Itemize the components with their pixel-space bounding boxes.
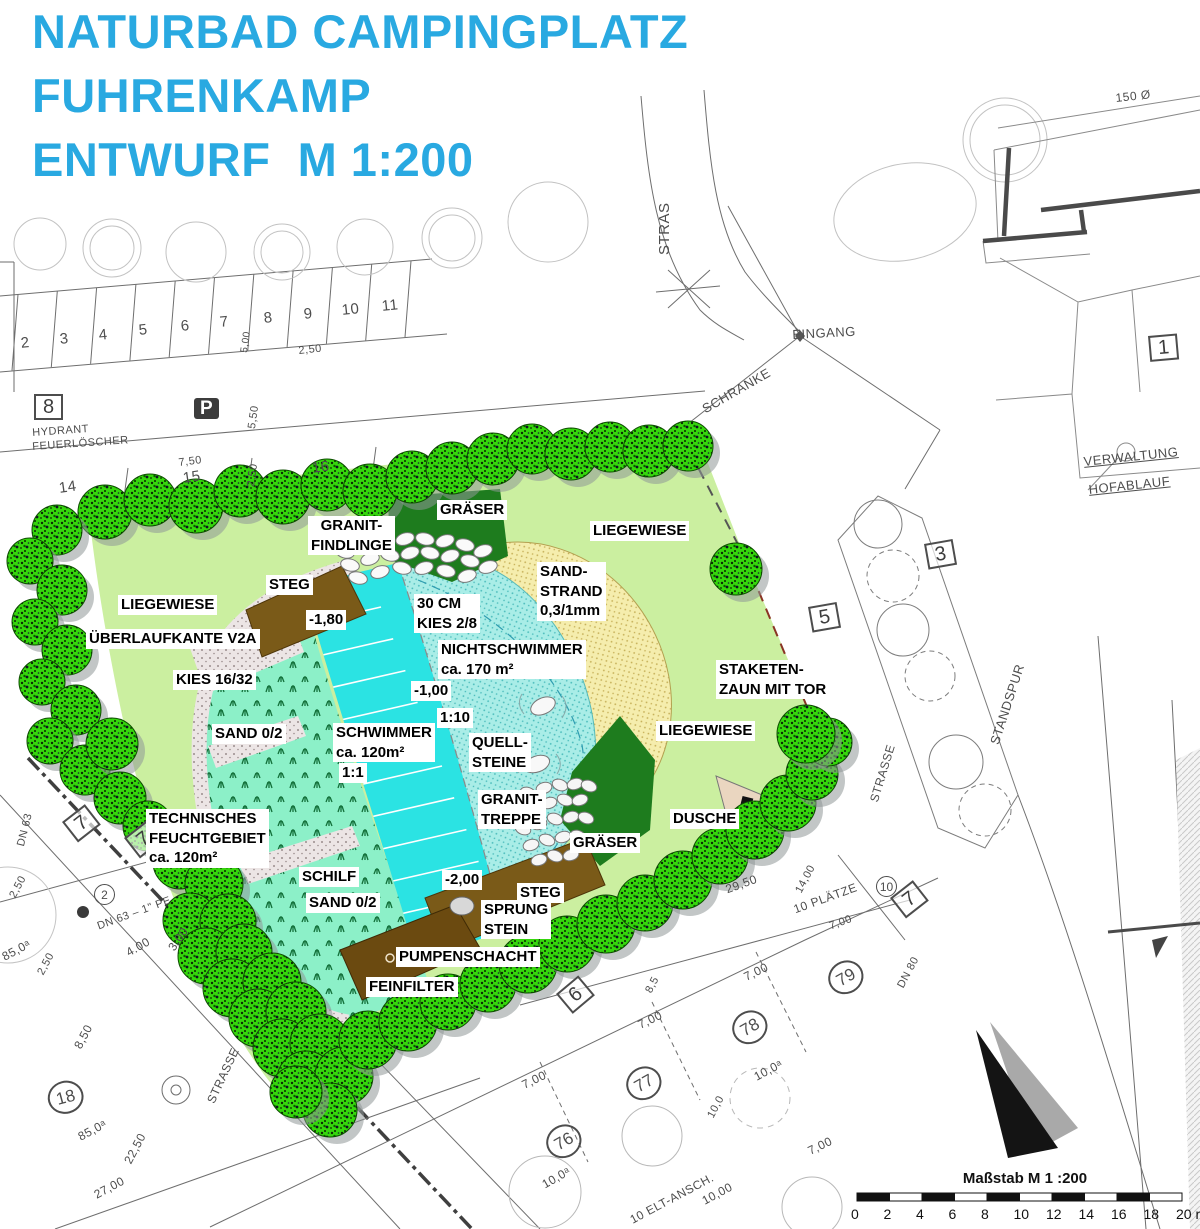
scan-label-14: 14 — [58, 479, 78, 496]
scalebar-tick-2: 2 — [884, 1206, 892, 1222]
plan-title-line-3: ENTWURF M 1:200 — [32, 136, 474, 183]
pool-design — [7, 421, 859, 1144]
plan-label-gräser: GRÄSER — [570, 833, 640, 853]
scan-label-2: 2 — [20, 335, 30, 351]
north-arrow — [976, 1022, 1078, 1158]
scan-label-6: 6 — [180, 318, 190, 334]
plan-label-granit-findlinge: GRANIT- FINDLINGE — [308, 516, 395, 555]
scan-label-3: 3 — [924, 539, 957, 570]
plan-label-steg: STEG — [266, 575, 313, 595]
scalebar-tick-6: 6 — [949, 1206, 957, 1222]
scan-label-8: 8 — [34, 394, 63, 420]
plan-label-feinfilter: FEINFILTER — [366, 977, 458, 997]
scalebar-tick-10: 10 — [1014, 1206, 1030, 1222]
scalebar-caption: Maßstab M 1 :200 — [940, 1170, 1110, 1187]
scan-label-15: 15 — [182, 469, 202, 486]
scan-label-7: 7 — [219, 314, 229, 330]
plan-label-sand-strand-0-3-1mm: SAND- STRAND 0,3/1mm — [537, 562, 606, 621]
scan-label-11: 11 — [381, 297, 399, 314]
jump-stone — [450, 897, 474, 915]
plan-label-1-1: 1:1 — [339, 763, 367, 783]
scan-label-9: 9 — [303, 306, 313, 322]
plan-label-quell-steine: QUELL- STEINE — [469, 733, 531, 772]
plan-title-line-1: NATURBAD CAMPINGPLATZ — [32, 8, 688, 55]
scan-label-5: 5 — [808, 602, 841, 633]
scan-label-5: 5 — [138, 322, 148, 338]
plan-label-30-cm-kies-2-8: 30 CM KIES 2/8 — [414, 594, 480, 633]
verwaltung-building — [983, 96, 1200, 490]
plan-label-sprung-stein: SPRUNG STEIN — [481, 900, 551, 939]
plan-title-line-2: FUHRENKAMP — [32, 72, 371, 119]
plan-label-technisches-feuchtgebiet-ca-120m: TECHNISCHES FEUCHTGEBIET ca. 120m² — [146, 809, 269, 868]
plan-label-nichtschwimmer-ca-170-m: NICHTSCHWIMMER ca. 170 m² — [438, 640, 586, 679]
scan-label-4: 4 — [98, 327, 108, 343]
scan-label-1: 1 — [1148, 333, 1179, 361]
plan-label-pumpenschacht: PUMPENSCHACHT — [396, 947, 540, 967]
plan-label-1-80: -1,80 — [306, 610, 346, 630]
plan-label-staketen-zaun-mit-tor: STAKETEN- ZAUN MIT TOR — [716, 660, 829, 699]
scalebar-tick-12: 12 — [1046, 1206, 1062, 1222]
scalebar-tick-14: 14 — [1079, 1206, 1095, 1222]
scan-label-150: 150 Ø — [1115, 88, 1151, 104]
scalebar-tick-0: 0 — [851, 1206, 859, 1222]
scan-label-p: P — [194, 398, 219, 419]
plan-label-granit-treppe: GRANIT- TREPPE — [478, 790, 546, 829]
scalebar-tick-8: 8 — [981, 1206, 989, 1222]
plan-label-überlaufkante-v2a: ÜBERLAUFKANTE V2A — [86, 629, 260, 649]
scan-label-eingang: EINGANG — [792, 325, 856, 341]
plan-label-2-00: -2,00 — [442, 870, 482, 890]
plan-label-kies-16-32: KIES 16/32 — [173, 670, 256, 690]
scan-label-2: 2 — [94, 884, 115, 905]
plan-label-liegewiese: LIEGEWIESE — [118, 595, 217, 615]
plan-label-sand-0-2: SAND 0/2 — [306, 893, 380, 913]
scan-label-10: 10 — [341, 301, 360, 318]
scan-label-stras: STRAS — [657, 202, 672, 255]
scalebar-tick-20-m: 20 m — [1176, 1206, 1200, 1222]
scalebar-tick-18: 18 — [1144, 1206, 1160, 1222]
plan-label-liegewiese: LIEGEWIESE — [656, 721, 755, 741]
scan-label-3: 3 — [59, 331, 69, 347]
scan-label-8: 8 — [263, 310, 273, 326]
plan-label-schwimmer-ca-120m: SCHWIMMER ca. 120m² — [333, 723, 435, 762]
scalebar-tick-4: 4 — [916, 1206, 924, 1222]
scalebar-tick-16: 16 — [1111, 1206, 1127, 1222]
scale-bar — [857, 1193, 1182, 1201]
plan-label-schilf: SCHILF — [299, 867, 359, 887]
plan-label-1-10: 1:10 — [437, 708, 473, 728]
plan-label-gräser: GRÄSER — [437, 500, 507, 520]
site-plan: NATURBAD CAMPINGPLATZ FUHRENKAMP ENTWURF… — [0, 0, 1200, 1229]
plan-label-1-00: -1,00 — [411, 681, 451, 701]
plan-label-liegewiese: LIEGEWIESE — [590, 521, 689, 541]
plan-label-sand-0-2: SAND 0/2 — [212, 724, 286, 744]
scan-label-16: 16 — [311, 459, 331, 476]
plan-label-dusche: DUSCHE — [670, 809, 739, 829]
